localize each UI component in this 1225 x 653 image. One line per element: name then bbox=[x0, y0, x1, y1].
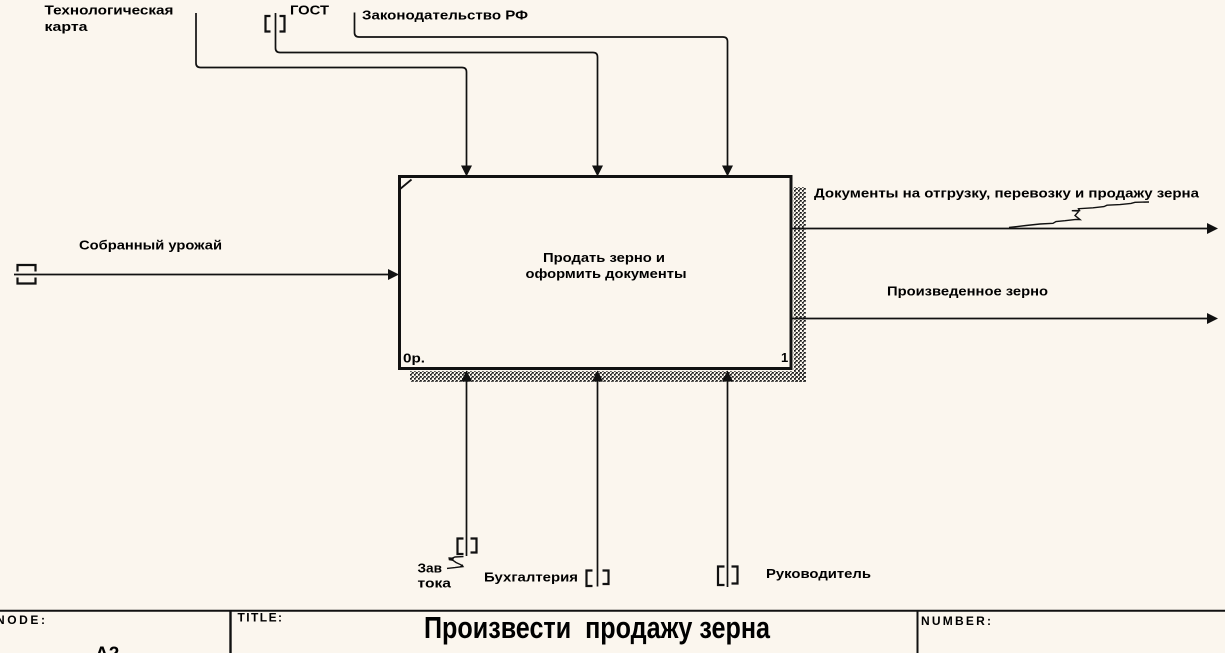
svg-text:1: 1 bbox=[781, 350, 788, 365]
svg-text:тока: тока bbox=[418, 576, 452, 591]
svg-text:карта: карта bbox=[45, 19, 89, 34]
svg-text:NODE:: NODE: bbox=[0, 613, 45, 627]
svg-text:NUMBER:: NUMBER: bbox=[921, 614, 991, 628]
svg-text:TITLE:: TITLE: bbox=[238, 611, 283, 625]
svg-text:Произведенное зерно: Произведенное зерно bbox=[887, 284, 1048, 299]
svg-text:A2: A2 bbox=[95, 644, 119, 653]
svg-text:ГОСТ: ГОСТ bbox=[290, 2, 329, 17]
svg-text:Документы на отгрузку, перевоз: Документы на отгрузку, перевозку и прода… bbox=[814, 185, 1200, 200]
svg-text:Технологическая: Технологическая bbox=[45, 3, 174, 18]
svg-text:Руководитель: Руководитель bbox=[766, 566, 871, 581]
svg-text:оформить документы: оформить документы bbox=[526, 266, 687, 281]
svg-text:0р.: 0р. bbox=[403, 350, 425, 365]
svg-text:Зав: Зав bbox=[418, 561, 443, 576]
svg-text:Произвести продажу зерна: Произвести продажу зерна bbox=[424, 610, 771, 645]
svg-text:Собранный урожай: Собранный урожай bbox=[79, 238, 222, 253]
svg-text:Продать зерно и: Продать зерно и bbox=[543, 250, 665, 265]
svg-text:Законодательство РФ: Законодательство РФ bbox=[362, 7, 528, 22]
svg-text:Бухгалтерия: Бухгалтерия bbox=[484, 569, 578, 584]
